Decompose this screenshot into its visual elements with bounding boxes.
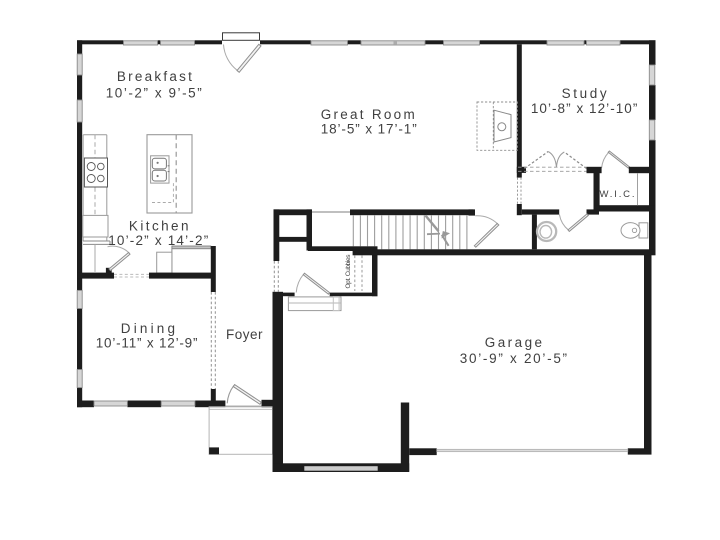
svg-text:10’-11” x 12’-9”: 10’-11” x 12’-9” bbox=[96, 336, 198, 351]
svg-text:Foyer: Foyer bbox=[226, 327, 263, 342]
svg-text:18’-5” x 17’-1”: 18’-5” x 17’-1” bbox=[321, 122, 417, 137]
svg-text:30’-9” x 20’-5”: 30’-9” x 20’-5” bbox=[460, 351, 567, 366]
svg-text:Study: Study bbox=[562, 86, 607, 101]
svg-text:Breakfast: Breakfast bbox=[117, 69, 192, 84]
svg-text:Opt. Cubbies: Opt. Cubbies bbox=[345, 254, 352, 289]
svg-text:10’-2” x 14’-2”: 10’-2” x 14’-2” bbox=[108, 233, 208, 248]
svg-text:Great Room: Great Room bbox=[321, 107, 415, 122]
svg-text:10’-8” x 12’-10”: 10’-8” x 12’-10” bbox=[531, 101, 638, 116]
